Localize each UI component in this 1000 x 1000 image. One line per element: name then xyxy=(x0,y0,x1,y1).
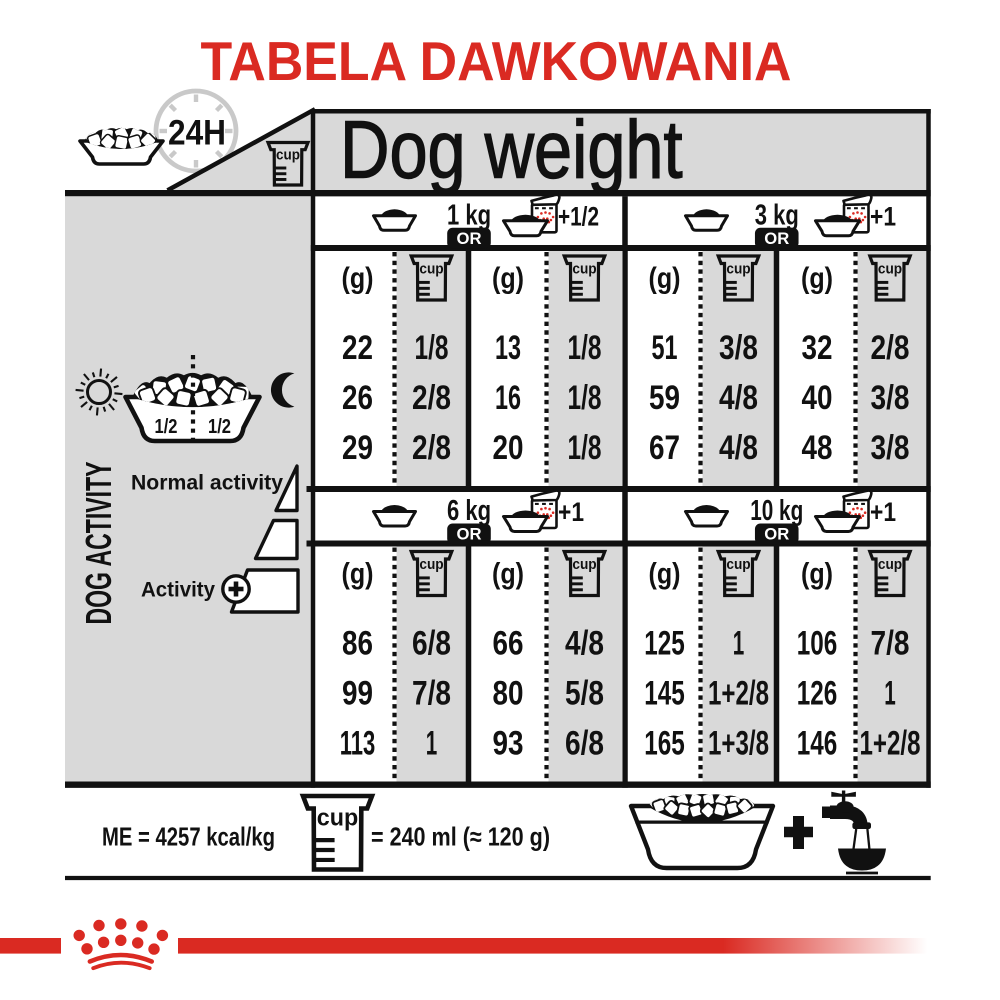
svg-text:1/2: 1/2 xyxy=(155,416,178,438)
svg-text:1+3/8: 1+3/8 xyxy=(708,725,769,763)
svg-text:(g): (g) xyxy=(342,262,374,295)
svg-text:4/8: 4/8 xyxy=(719,429,758,467)
svg-text:165: 165 xyxy=(644,725,685,763)
svg-text:(g): (g) xyxy=(342,558,374,591)
svg-text:OR: OR xyxy=(457,230,482,248)
svg-text:cup: cup xyxy=(317,804,358,831)
svg-text:(g): (g) xyxy=(649,262,681,295)
svg-text:2/8: 2/8 xyxy=(412,429,451,467)
svg-text:1+2/8: 1+2/8 xyxy=(860,725,921,763)
svg-text:(g): (g) xyxy=(801,558,833,591)
svg-text:TABELA DAWKOWANIA: TABELA DAWKOWANIA xyxy=(201,30,792,92)
svg-text:+1: +1 xyxy=(870,201,896,231)
svg-text:1 kg: 1 kg xyxy=(447,200,491,232)
svg-text:6/8: 6/8 xyxy=(565,725,604,763)
svg-text:= 240 ml (≈ 120 g): = 240 ml (≈ 120 g) xyxy=(371,822,550,852)
svg-text:cup: cup xyxy=(276,147,300,164)
svg-text:1/8: 1/8 xyxy=(568,379,602,417)
svg-text:OR: OR xyxy=(764,526,789,544)
svg-text:cup: cup xyxy=(572,556,596,573)
svg-text:(g): (g) xyxy=(649,558,681,591)
svg-text:86: 86 xyxy=(342,625,373,663)
svg-text:10 kg: 10 kg xyxy=(750,495,803,527)
svg-text:16: 16 xyxy=(495,379,521,417)
svg-text:48: 48 xyxy=(802,429,833,467)
svg-text:22: 22 xyxy=(342,329,373,367)
svg-text:Activity: Activity xyxy=(141,578,215,602)
svg-text:13: 13 xyxy=(495,329,521,367)
svg-text:126: 126 xyxy=(797,675,838,713)
svg-text:cup: cup xyxy=(726,556,750,573)
svg-text:32: 32 xyxy=(802,329,833,367)
svg-text:OR: OR xyxy=(764,230,789,248)
svg-text:40: 40 xyxy=(802,379,833,417)
svg-text:29: 29 xyxy=(342,429,373,467)
svg-text:26: 26 xyxy=(342,379,373,417)
svg-text:cup: cup xyxy=(572,261,596,278)
svg-text:(g): (g) xyxy=(492,262,524,295)
svg-text:1/8: 1/8 xyxy=(568,429,602,467)
svg-text:59: 59 xyxy=(649,379,680,417)
svg-text:4/8: 4/8 xyxy=(719,379,758,417)
svg-text:93: 93 xyxy=(493,725,524,763)
svg-text:(g): (g) xyxy=(492,558,524,591)
svg-text:2/8: 2/8 xyxy=(871,329,910,367)
svg-text:1: 1 xyxy=(733,625,745,663)
svg-text:1/8: 1/8 xyxy=(568,329,602,367)
svg-text:6/8: 6/8 xyxy=(412,625,451,663)
svg-text:DOG ACTIVITY: DOG ACTIVITY xyxy=(78,462,119,625)
svg-text:1/8: 1/8 xyxy=(415,329,449,367)
svg-text:2/8: 2/8 xyxy=(412,379,451,417)
svg-text:3 kg: 3 kg xyxy=(755,200,799,232)
svg-text:66: 66 xyxy=(493,625,524,663)
svg-text:cup: cup xyxy=(878,556,902,573)
svg-text:cup: cup xyxy=(726,261,750,278)
svg-text:1+2/8: 1+2/8 xyxy=(708,675,769,713)
svg-text:113: 113 xyxy=(340,725,376,763)
svg-text:99: 99 xyxy=(342,675,373,713)
svg-text:51: 51 xyxy=(652,329,678,367)
svg-text:6 kg: 6 kg xyxy=(447,495,491,527)
svg-text:Dog weight: Dog weight xyxy=(340,105,683,196)
svg-text:+1: +1 xyxy=(558,497,584,527)
svg-text:1: 1 xyxy=(426,725,438,763)
svg-text:20: 20 xyxy=(493,429,524,467)
svg-text:5/8: 5/8 xyxy=(565,675,604,713)
svg-text:1: 1 xyxy=(884,675,896,713)
svg-text:Normal activity: Normal activity xyxy=(131,471,283,495)
svg-text:+1/2: +1/2 xyxy=(558,201,599,231)
svg-text:3/8: 3/8 xyxy=(719,329,758,367)
svg-text:3/8: 3/8 xyxy=(871,379,910,417)
svg-text:3/8: 3/8 xyxy=(871,429,910,467)
svg-text:OR: OR xyxy=(457,526,482,544)
svg-text:+1: +1 xyxy=(870,497,896,527)
svg-text:125: 125 xyxy=(644,625,685,663)
svg-text:146: 146 xyxy=(797,725,838,763)
svg-text:4/8: 4/8 xyxy=(565,625,604,663)
svg-text:cup: cup xyxy=(419,261,443,278)
svg-text:24H: 24H xyxy=(168,114,226,153)
svg-text:7/8: 7/8 xyxy=(412,675,451,713)
svg-text:cup: cup xyxy=(878,261,902,278)
svg-text:1/2: 1/2 xyxy=(208,416,231,438)
svg-text:(g): (g) xyxy=(801,262,833,295)
svg-text:7/8: 7/8 xyxy=(871,625,910,663)
svg-text:cup: cup xyxy=(419,556,443,573)
svg-text:145: 145 xyxy=(644,675,685,713)
svg-text:80: 80 xyxy=(493,675,524,713)
svg-text:67: 67 xyxy=(649,429,680,467)
svg-text:ME = 4257 kcal/kg: ME = 4257 kcal/kg xyxy=(102,822,275,852)
svg-text:106: 106 xyxy=(797,625,838,663)
